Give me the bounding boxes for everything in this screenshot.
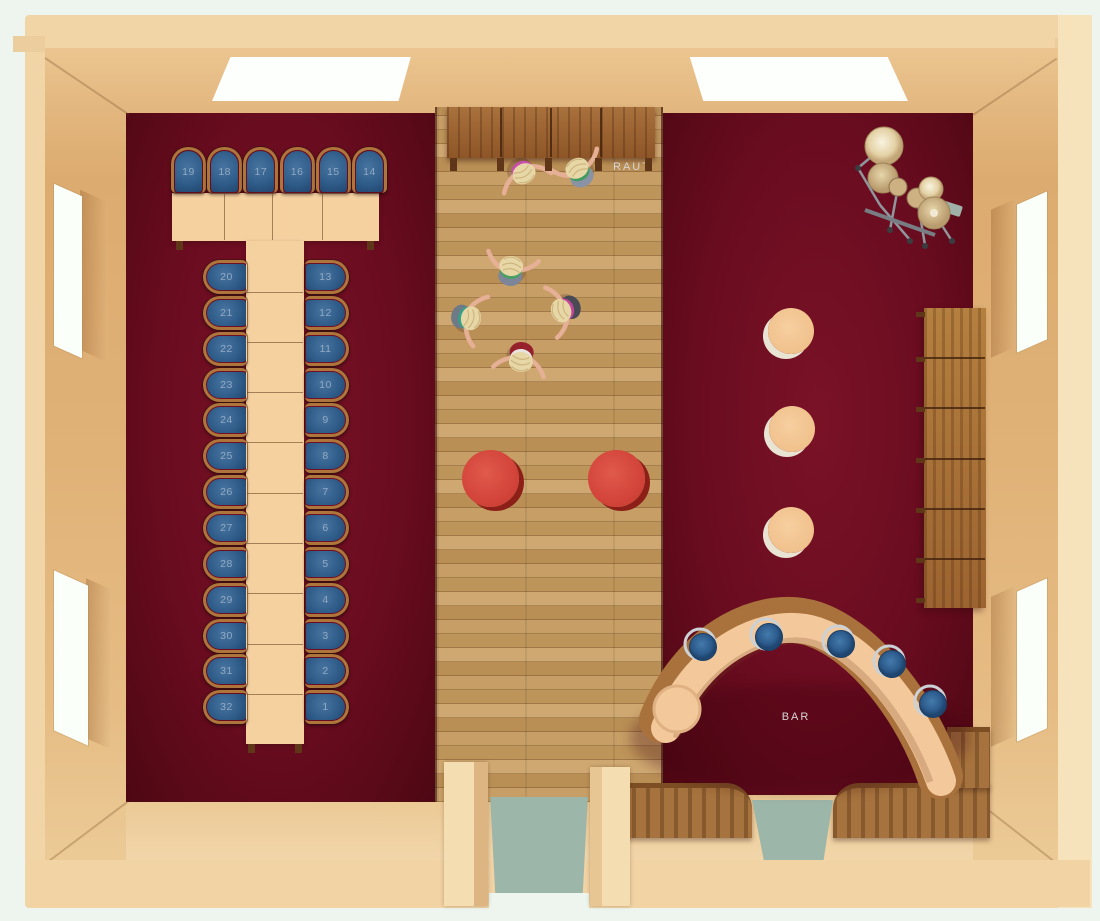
table-leg-3	[295, 744, 302, 753]
bar-hallway	[752, 800, 833, 862]
chair-cushion: 30	[207, 623, 246, 649]
chair-cushion: 3	[306, 623, 345, 649]
cabinet-divider-3	[925, 508, 985, 510]
chair-seat-31: 31	[203, 654, 247, 688]
chair-seat-27: 27	[203, 511, 247, 545]
table-leg-0	[176, 241, 183, 250]
chair-seat-22: 22	[203, 332, 247, 366]
red-round-table-1	[462, 450, 519, 507]
table-leg-1	[367, 241, 374, 250]
chair-cushion: 11	[306, 336, 345, 362]
seat-number: 23	[220, 379, 233, 391]
skylight-right	[683, 57, 908, 101]
seat-number: 30	[220, 630, 233, 642]
chair-seat-23: 23	[203, 368, 247, 402]
chair-seat-14: 14	[352, 147, 387, 193]
chair-cushion: 14	[356, 151, 383, 192]
chair-seat-1: 1	[305, 690, 349, 724]
chair-seat-8: 8	[305, 439, 349, 473]
chair-seat-15: 15	[316, 147, 351, 193]
chair-seat-17: 17	[243, 147, 278, 193]
cabinet-leg-3	[916, 458, 925, 463]
cabinet-leg-2	[916, 407, 925, 412]
window-right-lower	[1017, 578, 1047, 741]
seat-number: 29	[220, 594, 233, 606]
window-left-lower	[54, 570, 88, 745]
seat-number: 1	[322, 701, 328, 713]
top-counter-leg-0	[450, 158, 457, 171]
window-sill-left-upper	[80, 190, 108, 362]
seat-number: 20	[220, 271, 233, 283]
table-col-divider-4	[247, 493, 303, 494]
chair-cushion: 32	[207, 694, 246, 720]
seat-number: 3	[322, 630, 328, 642]
seat-number: 18	[218, 166, 231, 178]
chair-seat-11: 11	[305, 332, 349, 366]
back-counter-right-arm	[947, 727, 990, 788]
seat-number: 19	[182, 166, 195, 178]
seat-number: 13	[319, 271, 332, 283]
window-sill-right-lower	[991, 585, 1017, 747]
seat-number: 17	[255, 166, 268, 178]
seat-number: 26	[220, 486, 233, 498]
chair-cushion: 20	[207, 264, 246, 290]
seat-number: 27	[220, 522, 233, 534]
top-counter-divider-2	[600, 108, 602, 157]
chair-seat-25: 25	[203, 439, 247, 473]
seat-number: 22	[220, 343, 233, 355]
chair-cushion: 27	[207, 515, 246, 541]
chair-cushion: 24	[207, 407, 246, 433]
table-row-divider-2	[322, 194, 323, 240]
chair-cushion: 13	[306, 264, 345, 290]
cabinet-leg-6	[916, 598, 925, 603]
chair-cushion: 4	[306, 587, 345, 613]
table-leg-2	[248, 744, 255, 753]
chair-seat-5: 5	[305, 547, 349, 581]
bar-label: BAR	[773, 711, 819, 723]
beige-round-table-2	[769, 406, 815, 452]
seat-number: 5	[322, 558, 328, 570]
cabinet-leg-0	[916, 312, 925, 317]
right-wall-band	[1058, 15, 1092, 908]
seat-number: 16	[291, 166, 304, 178]
seat-number: 9	[322, 414, 328, 426]
seat-number: 25	[220, 450, 233, 462]
cabinet-divider-4	[925, 558, 985, 560]
chair-cushion: 23	[207, 372, 246, 398]
seat-number: 15	[327, 166, 340, 178]
chair-cushion: 12	[306, 300, 345, 326]
skylight-left	[212, 57, 417, 101]
chair-seat-24: 24	[203, 403, 247, 437]
seat-number: 14	[363, 166, 376, 178]
seat-number: 8	[322, 450, 328, 462]
chair-cushion: 1	[306, 694, 345, 720]
chair-seat-20: 20	[203, 260, 247, 294]
table-col-divider-3	[247, 442, 303, 443]
chair-seat-3: 3	[305, 619, 349, 653]
table-row-divider-1	[272, 194, 273, 240]
back-counter-left	[618, 783, 752, 838]
chair-cushion: 5	[306, 551, 345, 577]
cabinet-divider-2	[925, 458, 985, 460]
chair-seat-10: 10	[305, 368, 349, 402]
table-col-divider-1	[247, 342, 303, 343]
banquet-table-row	[172, 193, 379, 241]
chair-seat-4: 4	[305, 583, 349, 617]
chair-seat-28: 28	[203, 547, 247, 581]
floor-plan-scene: RAUT BAR 1918171615142021222324252627282…	[0, 0, 1100, 921]
chair-seat-13: 13	[305, 260, 349, 294]
red-round-table-2	[588, 450, 645, 507]
seat-number: 28	[220, 558, 233, 570]
table-col-divider-8	[247, 694, 303, 695]
cabinet-divider-1	[925, 407, 985, 409]
chair-seat-29: 29	[203, 583, 247, 617]
chair-cushion: 28	[207, 551, 246, 577]
chair-cushion: 6	[306, 515, 345, 541]
cabinet-leg-4	[916, 508, 925, 513]
chair-seat-30: 30	[203, 619, 247, 653]
chair-cushion: 19	[175, 151, 202, 192]
chair-cushion: 29	[207, 587, 246, 613]
chair-cushion: 10	[306, 372, 345, 398]
seat-number: 32	[220, 701, 233, 713]
chair-cushion: 17	[247, 151, 274, 192]
roof-step-left	[13, 36, 45, 52]
beige-round-table-1	[768, 308, 814, 354]
chair-cushion: 26	[207, 479, 246, 505]
chair-seat-32: 32	[203, 690, 247, 724]
beige-round-table-3	[768, 507, 814, 553]
back-counter-right	[833, 783, 990, 838]
chair-seat-18: 18	[207, 147, 242, 193]
cabinet-divider-0	[925, 357, 985, 359]
chair-seat-6: 6	[305, 511, 349, 545]
chair-seat-16: 16	[280, 147, 315, 193]
chair-cushion: 2	[306, 658, 345, 684]
table-col-divider-7	[247, 644, 303, 645]
top-counter-divider-0	[500, 108, 502, 157]
top-counter-leg-1	[497, 158, 504, 171]
entrance-pillar-left	[444, 762, 488, 906]
chair-cushion: 16	[284, 151, 311, 192]
entrance-runner	[487, 797, 591, 895]
window-sill-left-lower	[86, 578, 112, 750]
seat-number: 21	[220, 307, 233, 319]
seat-number: 11	[320, 343, 332, 355]
table-col-divider-5	[247, 543, 303, 544]
chair-cushion: 15	[320, 151, 347, 192]
entrance-opening	[489, 893, 589, 913]
window-sill-right-upper	[991, 198, 1017, 358]
seat-number: 4	[322, 594, 328, 606]
chair-seat-2: 2	[305, 654, 349, 688]
entrance-pillar-right	[590, 767, 630, 906]
cabinet-leg-1	[916, 357, 925, 362]
chair-cushion: 18	[211, 151, 238, 192]
seat-number: 7	[322, 486, 328, 498]
cabinet-leg-5	[916, 558, 925, 563]
chair-seat-12: 12	[305, 296, 349, 330]
chair-cushion: 21	[207, 300, 246, 326]
seat-number: 31	[220, 665, 233, 677]
table-row-divider-0	[224, 194, 225, 240]
chair-seat-9: 9	[305, 403, 349, 437]
chair-cushion: 31	[207, 658, 246, 684]
chair-seat-19: 19	[171, 147, 206, 193]
table-col-divider-2	[247, 392, 303, 393]
top-counter-leg-4	[645, 158, 652, 171]
seat-number: 10	[319, 379, 332, 391]
chair-seat-21: 21	[203, 296, 247, 330]
chair-seat-26: 26	[203, 475, 247, 509]
chair-cushion: 9	[306, 407, 345, 433]
chair-seat-7: 7	[305, 475, 349, 509]
chair-cushion: 25	[207, 443, 246, 469]
table-col-divider-6	[247, 593, 303, 594]
seat-number: 24	[220, 414, 233, 426]
seat-number: 6	[322, 522, 328, 534]
chair-cushion: 8	[306, 443, 345, 469]
seat-number: 12	[319, 307, 332, 319]
top-counter-divider-1	[550, 108, 552, 157]
top-counter-leg-2	[545, 158, 552, 171]
seat-number: 2	[322, 665, 328, 677]
window-right-upper	[1017, 191, 1047, 352]
table-col-divider-0	[247, 292, 303, 293]
window-left-upper	[54, 184, 82, 358]
top-counter-leg-3	[595, 158, 602, 171]
chair-cushion: 22	[207, 336, 246, 362]
chair-cushion: 7	[306, 479, 345, 505]
